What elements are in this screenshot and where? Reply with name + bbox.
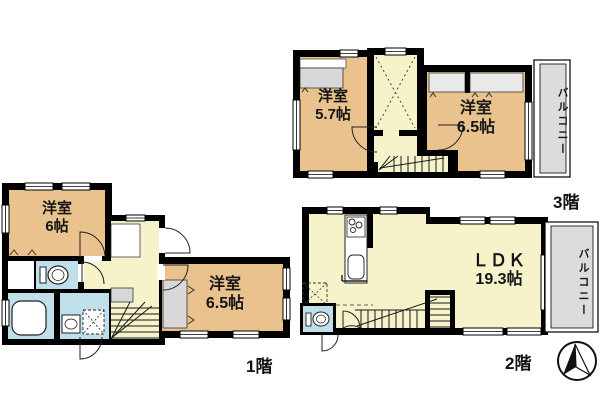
balcony-label-2f: バルコニー	[557, 235, 591, 331]
floor-plan-1f: 洋室 6帖 洋室 6.5帖	[0, 180, 300, 380]
closet-1f-hall	[111, 224, 140, 257]
room-name: ＬＤＫ	[455, 251, 543, 271]
bathtub-icon	[12, 301, 46, 335]
void-shaft-3f	[374, 55, 417, 130]
sink-icon	[62, 315, 80, 333]
floor-label-2f: 2階	[505, 349, 531, 374]
room-label-3f-bedroom-a: 洋室 5.7帖	[302, 88, 364, 123]
storage-1f-under-stairs	[111, 288, 133, 302]
room-label-1f-bedroom-b: 洋室 6.5帖	[185, 276, 265, 314]
kitchen-sink-icon	[348, 255, 364, 279]
room-size: 19.3帖	[455, 271, 543, 290]
floor-label-1f: 1階	[246, 352, 272, 377]
room-label-2f-ldk: ＬＤＫ 19.3帖	[455, 251, 543, 290]
room-name: 洋室	[20, 200, 94, 218]
floor-label-3f: 3階	[553, 188, 579, 213]
closet-1f-entry	[8, 261, 34, 289]
toilet-icon	[40, 266, 68, 284]
room-name: 洋室	[302, 88, 364, 106]
floor-plan-2f: ＬＤＫ 19.3帖 バルコニー	[295, 185, 600, 395]
room-name: 洋室	[185, 276, 265, 295]
hall-1f-branch	[84, 261, 114, 289]
room-size: 6.5帖	[430, 119, 522, 138]
toilet-icon	[306, 312, 329, 326]
washing-machine-icon	[83, 310, 104, 334]
room-size: 5.7帖	[302, 106, 364, 124]
balcony-label-3f: バルコニー	[536, 72, 570, 172]
floor-plan-canvas: 洋室 5.7帖 洋室 6.5帖 バルコニー	[0, 0, 600, 400]
room-size: 6帖	[20, 218, 94, 236]
stove-icon	[347, 217, 365, 237]
room-label-1f-bedroom-a: 洋室 6帖	[20, 200, 94, 235]
room-name: 洋室	[430, 100, 522, 119]
toilet-room-2f	[300, 303, 336, 335]
room-size: 6.5帖	[185, 295, 265, 314]
room-label-3f-bedroom-b: 洋室 6.5帖	[430, 100, 522, 138]
north-arrow-icon	[558, 342, 596, 380]
floor-plan-2f-drawing	[295, 185, 600, 395]
